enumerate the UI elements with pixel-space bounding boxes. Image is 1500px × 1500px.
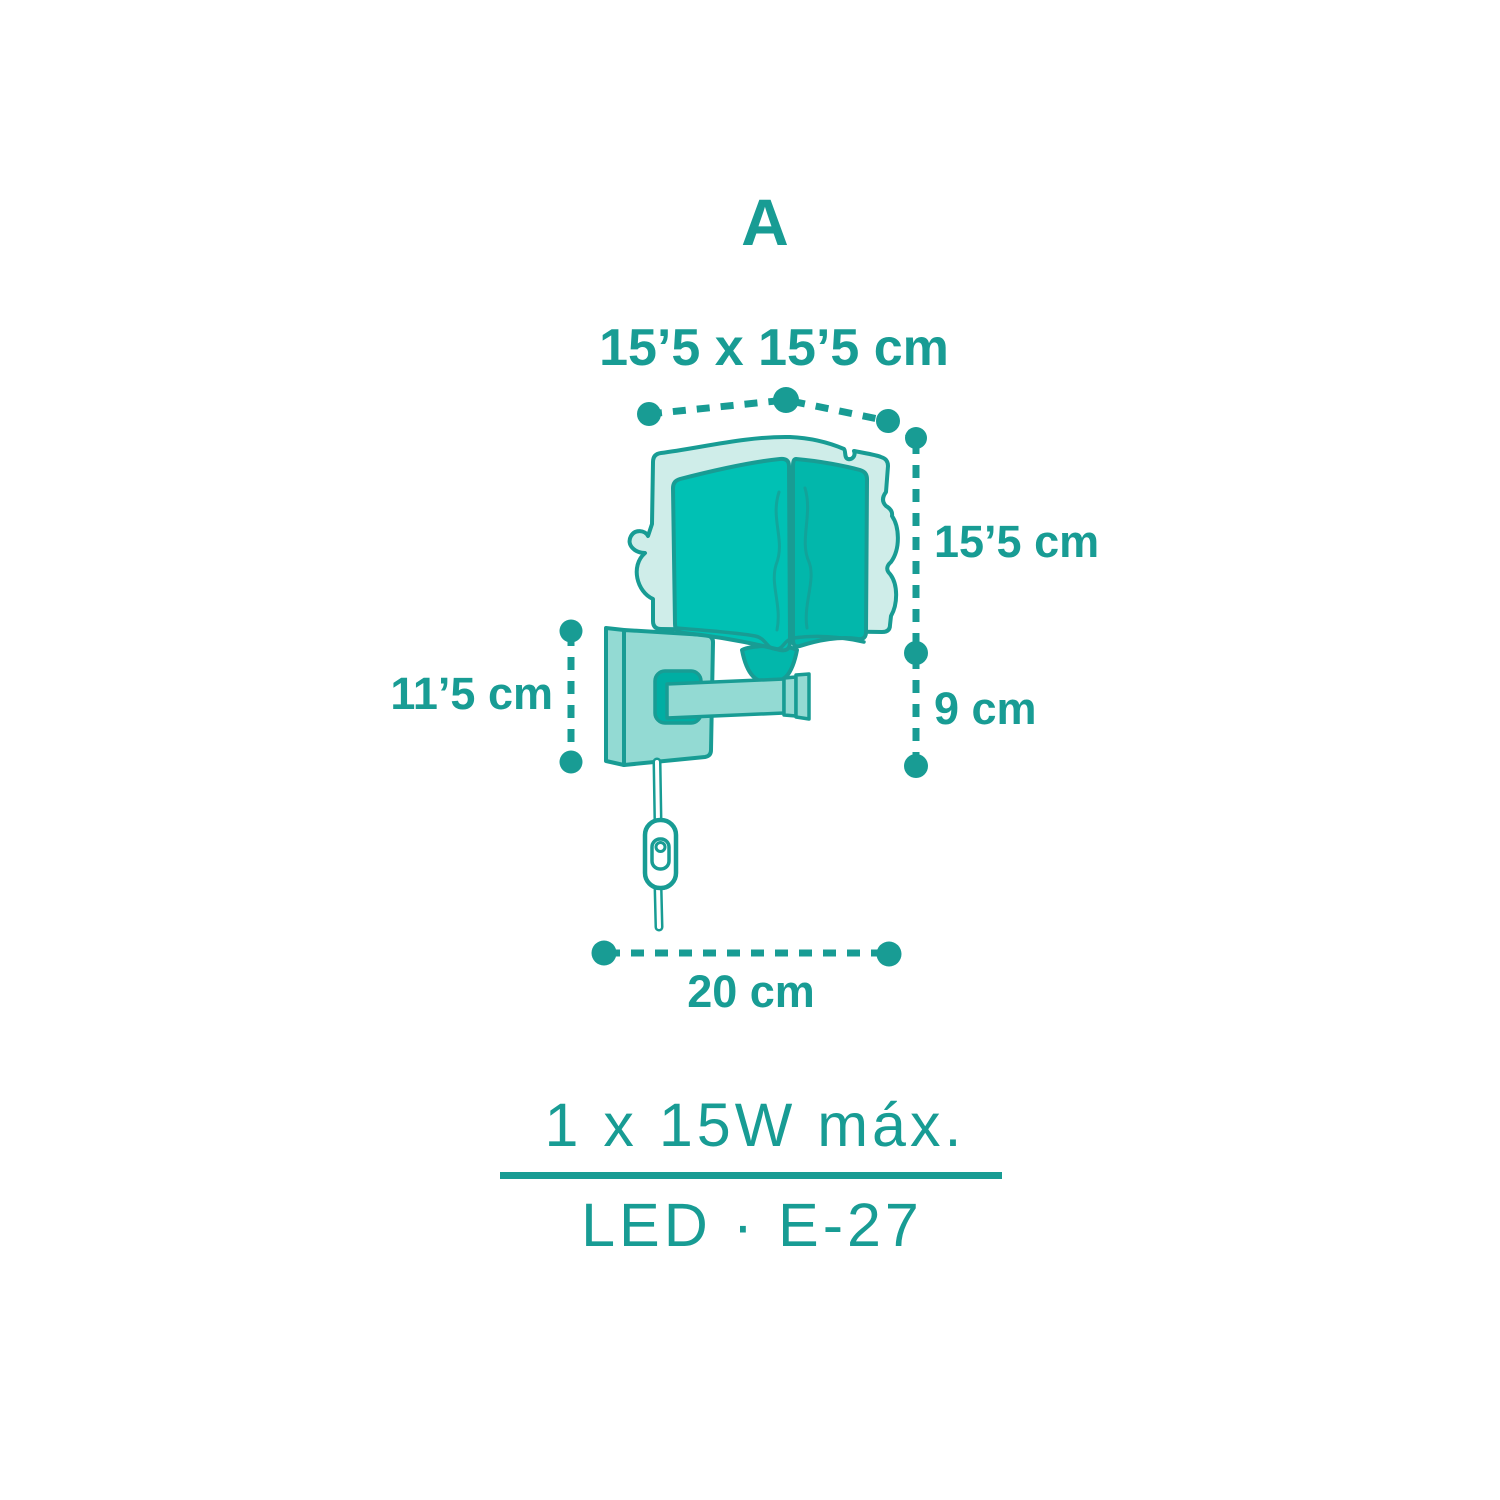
dim-dot bbox=[877, 942, 902, 967]
arm-end-cap-outer bbox=[796, 674, 809, 719]
dim-dot bbox=[637, 402, 661, 426]
arm-end-cap-inner bbox=[784, 677, 796, 716]
shade-front-face bbox=[673, 459, 790, 650]
diagram-canvas: A 15’5 x 15’5 cm 15’5 cm 9 cm 11’5 cm 20… bbox=[0, 0, 1500, 1500]
dim-dot bbox=[905, 427, 927, 449]
dim-dot bbox=[560, 751, 583, 774]
power-cord bbox=[645, 762, 676, 927]
backplate-side-edge bbox=[606, 628, 624, 765]
dim-dot bbox=[876, 409, 900, 433]
spec-divider-rule bbox=[500, 1172, 1002, 1179]
dim-dot bbox=[592, 941, 617, 966]
dim-label-backplate-height: 11’5 cm bbox=[390, 671, 553, 716]
dim-dot bbox=[773, 387, 799, 413]
dim-label-total-depth: 20 cm bbox=[687, 969, 815, 1014]
spec-socket-type: LED · E-27 bbox=[581, 1195, 923, 1256]
dim-label-top-width: 15’5 x 15’5 cm bbox=[599, 322, 949, 374]
dim-dot bbox=[904, 641, 928, 665]
dim-dot bbox=[560, 620, 583, 643]
view-label: A bbox=[741, 189, 789, 255]
arm-bar bbox=[667, 679, 784, 718]
dim-label-shade-height: 15’5 cm bbox=[934, 519, 1099, 564]
dim-dot bbox=[904, 754, 928, 778]
wall-lamp-illustration bbox=[606, 437, 898, 927]
spec-max-wattage: 1 x 15W máx. bbox=[545, 1095, 966, 1156]
dim-label-drop-height: 9 cm bbox=[934, 686, 1037, 731]
